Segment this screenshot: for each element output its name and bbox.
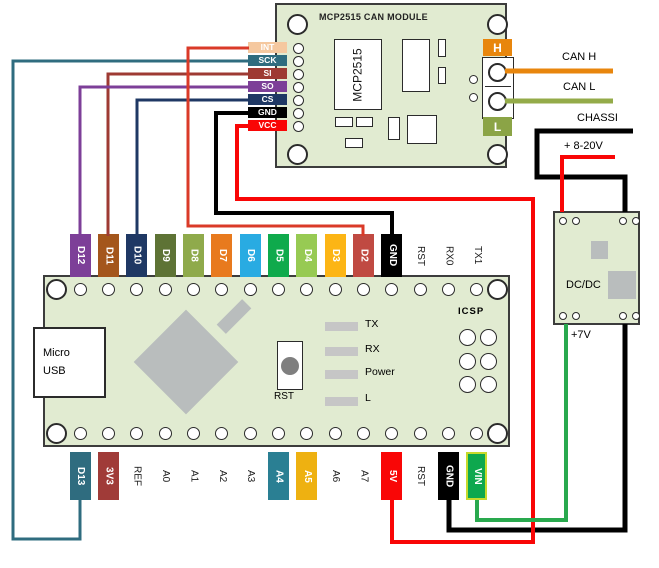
chassis-wire-label: CHASSI [577,112,618,124]
nano-pin-bottom-a5-text: A5 [302,470,312,483]
nano-pin-bottom-a4: A4 [268,452,289,500]
nano-pin-bottom-gnd-text: GND [444,465,454,487]
nano-pin-bottom-a7: A7 [353,452,374,500]
nano-pin-bottom-vin: VIN [466,452,487,500]
nano-pin-bottom-a3-text: A3 [245,470,255,482]
can-l-wire-label: CAN L [563,81,595,93]
nano-pin-bottom-d13: D13 [70,452,91,500]
nano-pin-bottom-a2-text: A2 [217,470,227,482]
nano-pin-bottom-a6-text: A6 [330,470,340,482]
nano-pin-bottom-d13-text: D13 [75,467,85,485]
nano-pin-bottom-a0-text: A0 [160,470,170,482]
nano-pin-bottom-a2: A2 [211,452,232,500]
nano-pin-bottom-5v: 5V [381,452,402,500]
nano-pin-bottom-a1-text: A1 [188,470,198,482]
nano-pin-bottom-rst-text: RST [415,466,425,486]
wiring-diagram: MCP2515 CAN MODULE MCP2515 H L Micro USB… [0,0,659,568]
nano-pin-bottom-a4-text: A4 [273,470,283,483]
nano-pin-bottom-3v3: 3V3 [98,452,119,500]
nano-pin-bottom-ref-text: REF [132,466,142,486]
nano-bottom-pin-labels: D133V3REFA0A1A2A3A4A5A6A75VRSTGNDVIN [0,0,659,568]
nano-pin-bottom-gnd: GND [438,452,459,500]
power-in-label: + 8-20V [564,140,603,152]
nano-pin-bottom-a7-text: A7 [359,470,369,482]
nano-pin-bottom-ref: REF [126,452,147,500]
nano-pin-bottom-a1: A1 [183,452,204,500]
nano-pin-bottom-a5: A5 [296,452,317,500]
nano-pin-bottom-a0: A0 [155,452,176,500]
nano-pin-bottom-3v3-text: 3V3 [103,467,113,485]
nano-pin-bottom-vin-text: VIN [472,468,482,485]
nano-pin-bottom-5v-text: 5V [387,470,397,482]
nano-pin-bottom-rst: RST [410,452,431,500]
dcdc-output-label: +7V [571,329,591,341]
nano-pin-bottom-a6: A6 [325,452,346,500]
reset-button-cap [281,357,299,375]
can-h-wire-label: CAN H [562,51,596,63]
nano-pin-bottom-a3: A3 [240,452,261,500]
